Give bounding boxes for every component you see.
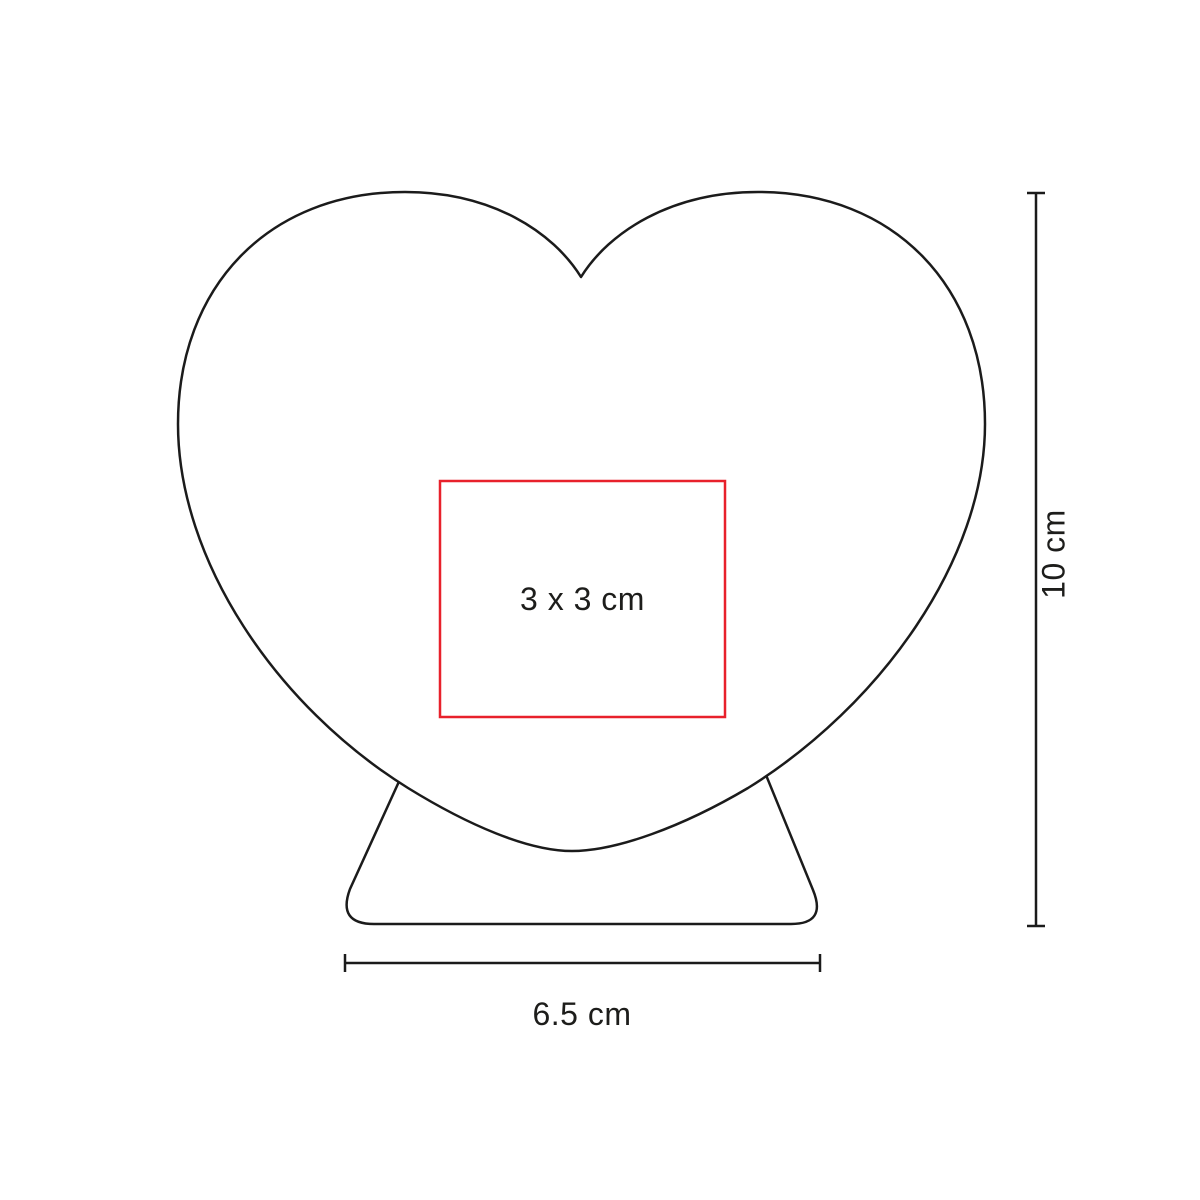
- height-dimension-label: 10 cm: [1036, 509, 1073, 599]
- product-dimension-diagram: 3 x 3 cm 10 cm 6.5 cm: [0, 0, 1200, 1200]
- width-dimension-line: [345, 954, 820, 972]
- print-area-label: 3 x 3 cm: [440, 481, 725, 717]
- width-dimension-label: 6.5 cm: [432, 996, 732, 1033]
